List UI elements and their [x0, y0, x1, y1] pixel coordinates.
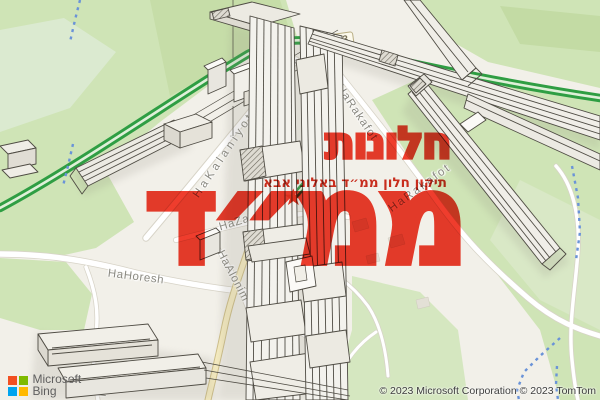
- microsoft-logo-icon: [8, 376, 28, 396]
- bing-map-canvas[interactable]: HaKalaniyotHaRakafotHaRakafotHadarimHaZa…: [0, 0, 600, 400]
- logo-text-bing: Bing: [33, 386, 82, 398]
- watermark-overlay: חלונות ממ״ד תיקון חלון ממ״ד באלוני אבא ★: [0, 0, 600, 400]
- microsoft-bing-logo[interactable]: Microsoft Bing: [8, 374, 81, 397]
- star-icon: ★: [283, 186, 304, 209]
- copyright-text: © 2023 Microsoft Corporation © 2023 TomT…: [379, 385, 596, 397]
